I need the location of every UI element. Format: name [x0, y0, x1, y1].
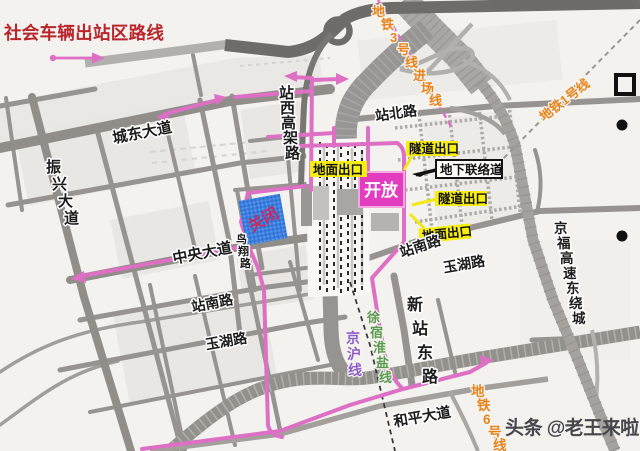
svg-text:徐: 徐: [366, 310, 380, 325]
svg-text:京: 京: [554, 220, 568, 236]
svg-text:线: 线: [379, 370, 392, 385]
svg-text:东: 东: [417, 343, 433, 362]
svg-text:头条 @老王来啦: 头条 @老王来啦: [505, 416, 639, 439]
svg-text:路: 路: [285, 144, 301, 162]
svg-text:城: 城: [572, 310, 586, 326]
svg-text:站: 站: [412, 319, 428, 338]
svg-text:宿: 宿: [370, 325, 383, 340]
svg-text:速: 速: [563, 265, 577, 281]
svg-text:高: 高: [560, 250, 574, 266]
svg-text:线: 线: [493, 437, 507, 451]
svg-text:隧道出口: 隧道出口: [438, 191, 488, 206]
svg-text:路: 路: [240, 256, 252, 270]
svg-text:线: 线: [429, 93, 442, 108]
svg-text:东: 东: [566, 280, 580, 296]
svg-text:京: 京: [346, 330, 360, 346]
svg-text:绕: 绕: [569, 295, 583, 311]
svg-text:开放: 开放: [364, 180, 399, 200]
svg-text:地面出口: 地面出口: [313, 162, 363, 177]
svg-text:兴: 兴: [52, 176, 67, 193]
svg-text:新: 新: [407, 295, 423, 314]
svg-text:淮: 淮: [372, 340, 386, 355]
svg-text:线: 线: [348, 362, 362, 378]
svg-text:道: 道: [64, 209, 79, 227]
svg-text:地下联络道: 地下联络道: [440, 162, 503, 177]
svg-text:隧道出口: 隧道出口: [409, 141, 459, 156]
svg-text:社会车辆出站区路线: 社会车辆出站区路线: [3, 23, 164, 43]
svg-text:翔: 翔: [237, 244, 249, 258]
svg-text:大: 大: [58, 192, 73, 210]
svg-text:地: 地: [471, 383, 485, 399]
svg-text:铁: 铁: [477, 397, 491, 413]
svg-text:鸟: 鸟: [236, 232, 247, 246]
svg-text:振: 振: [46, 158, 61, 176]
svg-text:路: 路: [422, 367, 439, 386]
svg-text:沪: 沪: [347, 346, 361, 362]
svg-text:盐: 盐: [376, 355, 389, 370]
svg-text:福: 福: [556, 235, 571, 251]
